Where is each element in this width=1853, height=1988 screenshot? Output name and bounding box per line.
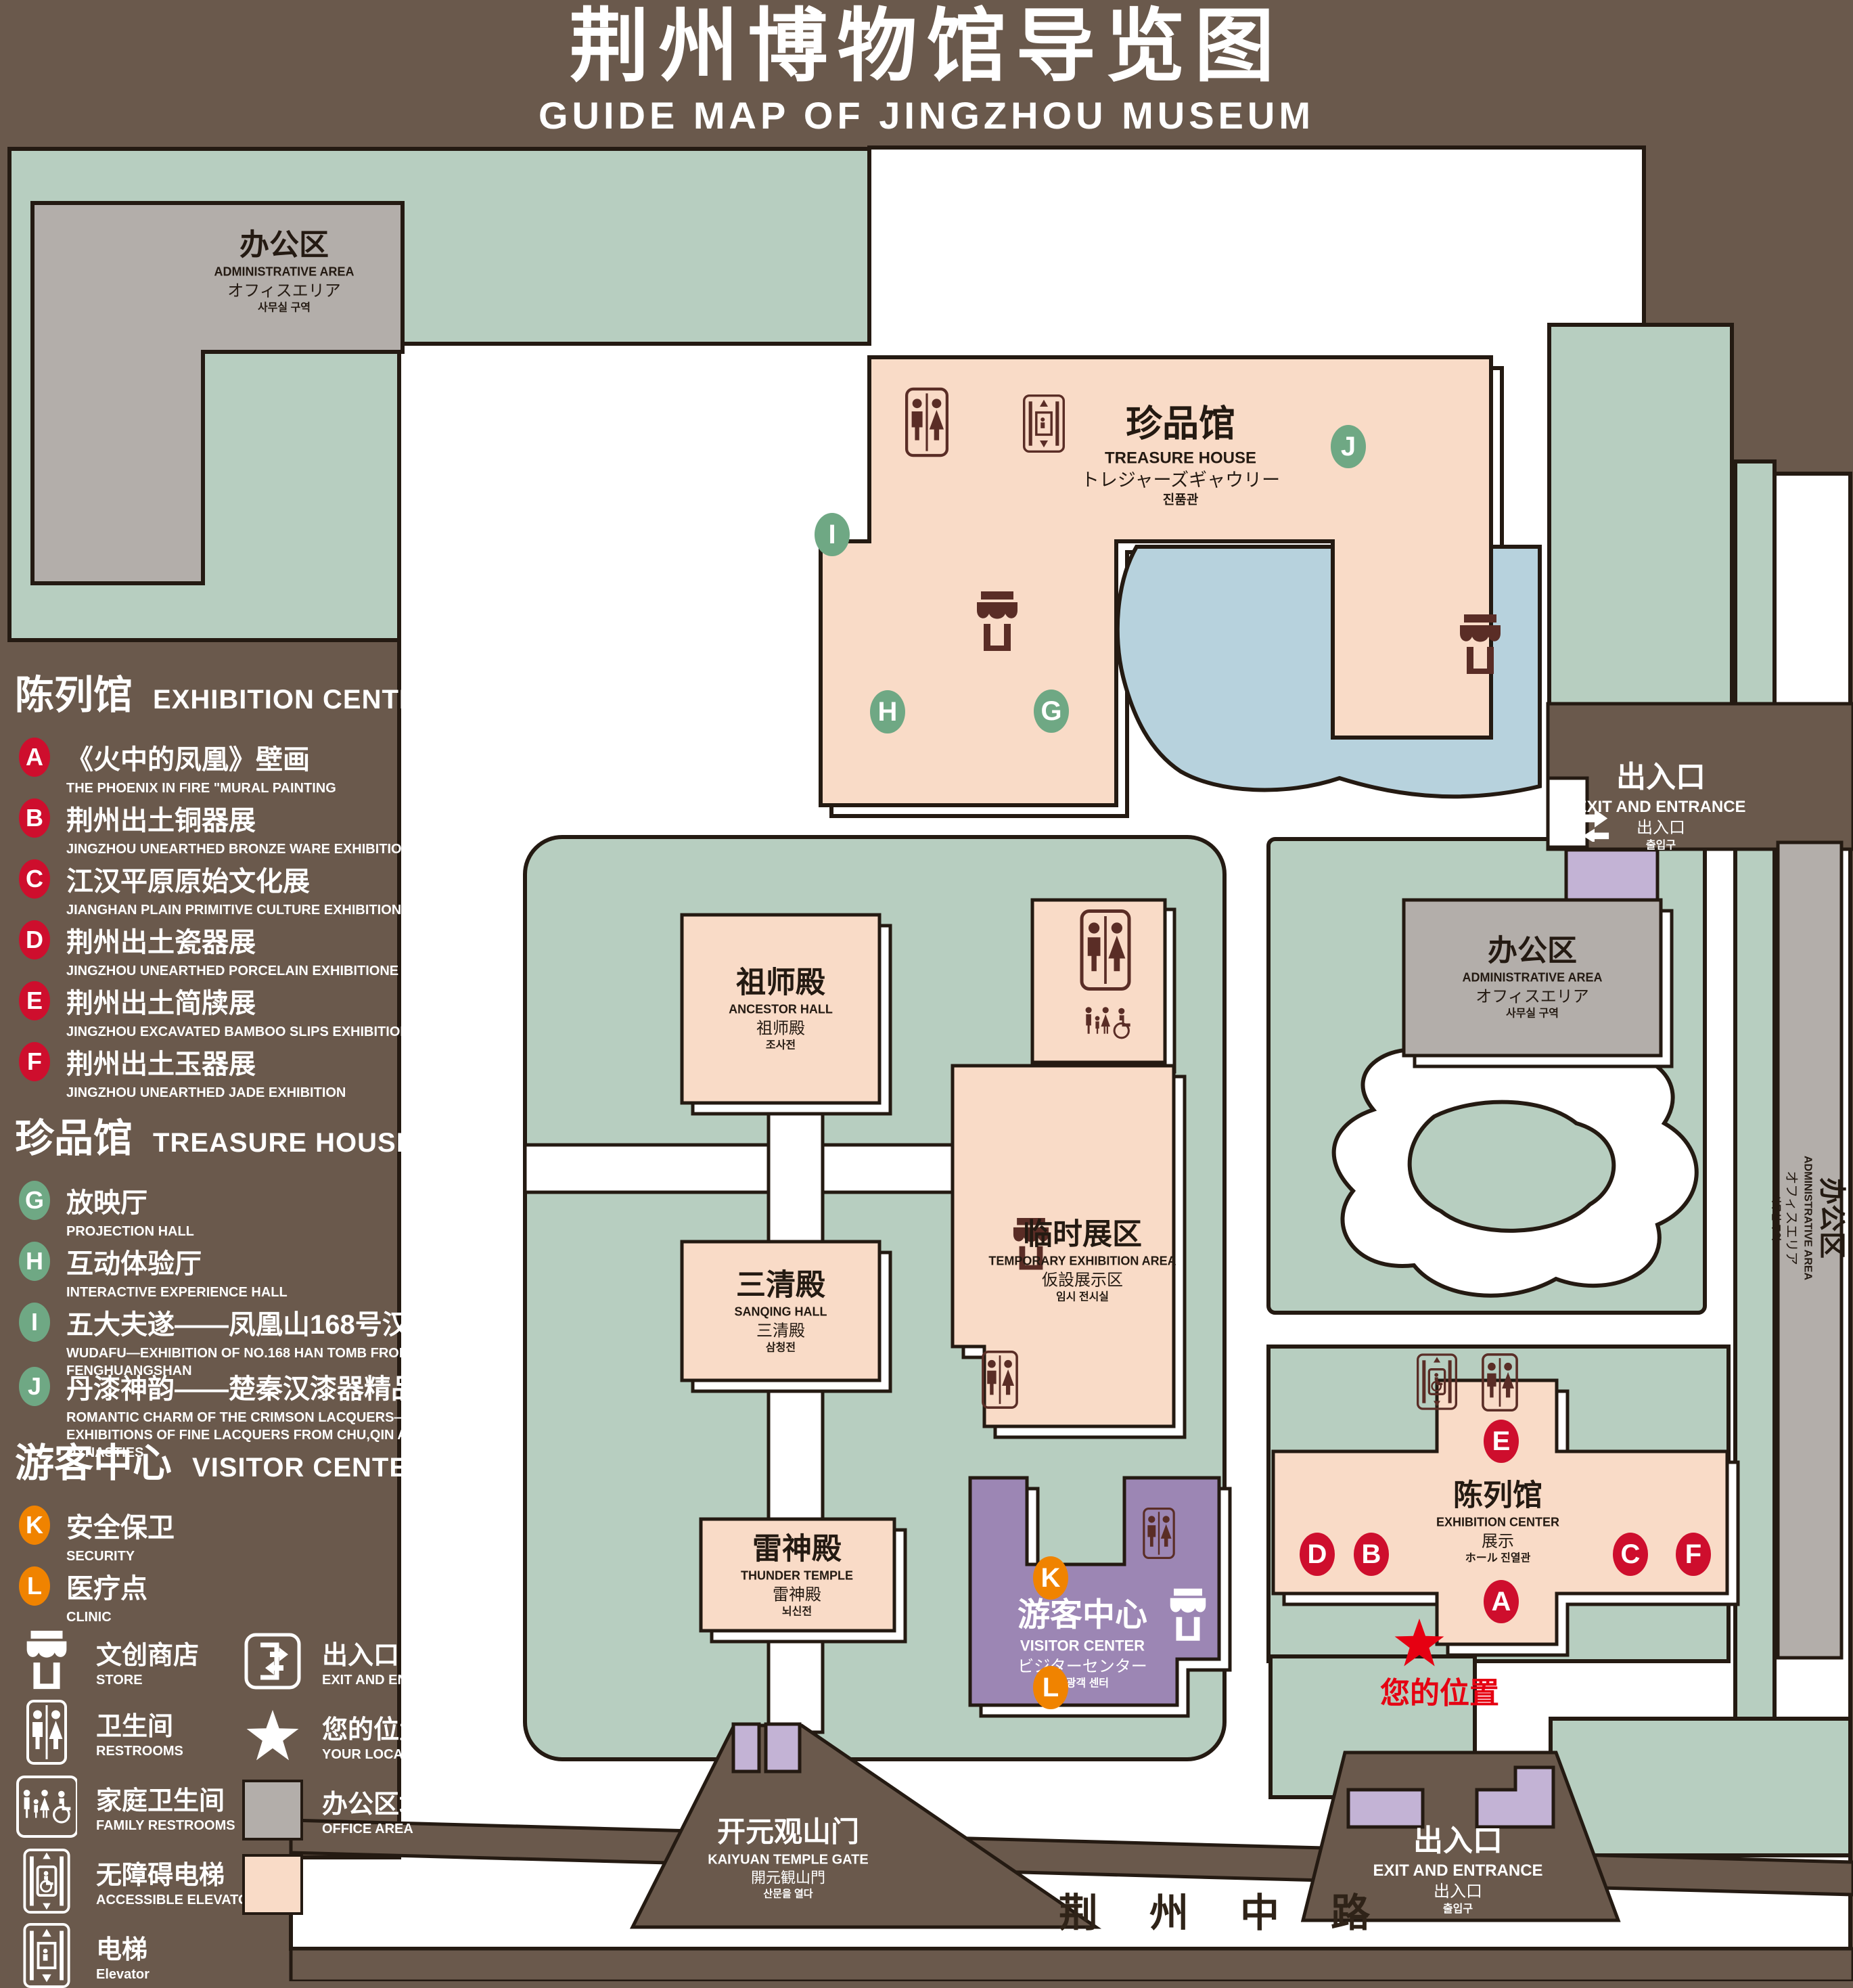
marker-e-badge: E bbox=[19, 981, 50, 1020]
floor-tag: 2F bbox=[465, 982, 499, 1016]
map-marker-l: L bbox=[1033, 1666, 1068, 1709]
map-marker-f: F bbox=[1676, 1533, 1711, 1576]
gate-building-northeast bbox=[1566, 850, 1657, 904]
map-marker-a: A bbox=[1484, 1580, 1519, 1623]
label-kaiyuan-gate: 开元观山门 KAIYUAN TEMPLE GATE 開元観山門 산문을 열다 bbox=[708, 1814, 868, 1901]
marker-b-badge: B bbox=[19, 798, 50, 838]
label-sanqing-hall: 三清殿 SANQING HALL 三清殿 삼청전 bbox=[735, 1266, 827, 1356]
path-horizontal bbox=[525, 1145, 953, 1192]
legend-item-e: E 荆州出土简牍展 JINGZHOU EXCAVATED BAMBOO SLIP… bbox=[12, 981, 518, 1041]
guide-map-page: { "title": {"zh": "荆州博物馆导览图", "en": "GUI… bbox=[0, 0, 1853, 1981]
floor-tag: 1F bbox=[465, 1568, 499, 1602]
legend-item-g: G 放映厅 PROJECTION HALL 1F bbox=[12, 1181, 518, 1240]
restrooms-block bbox=[1032, 900, 1165, 1062]
label-temporary-exhibition: 临时展区 TEMPORARY EXHIBITION AREA 仮設展示区 임시 … bbox=[988, 1215, 1176, 1305]
exit-icon bbox=[242, 1631, 303, 1692]
legend-symbol-store: 文创商店 STORE bbox=[16, 1631, 199, 1692]
marker-k-badge: K bbox=[19, 1506, 50, 1545]
label-exit-south: 出入口 EXIT AND ENTRANCE 出入口 출입구 bbox=[1373, 1822, 1542, 1916]
marker-f-badge: F bbox=[19, 1042, 50, 1081]
display-area-swatch bbox=[242, 1854, 303, 1915]
your-location-label: 您的位置 bbox=[1380, 1669, 1499, 1712]
floor-tag: 1F bbox=[465, 800, 499, 834]
legend-section-treasure-house: 珍品馆 TREASURE HOUSE bbox=[15, 1106, 415, 1163]
legend-section-exhibition-center: 陈列馆 EXHIBITION CENTER bbox=[15, 663, 438, 720]
marker-h-badge: H bbox=[19, 1242, 50, 1281]
map-marker-c: C bbox=[1613, 1533, 1648, 1576]
floor-tag: 1F bbox=[465, 1182, 499, 1216]
map-marker-i: I bbox=[815, 513, 850, 556]
map-marker-j: J bbox=[1331, 425, 1366, 468]
marker-a-badge: A bbox=[19, 738, 50, 777]
kaiyuan-gate-pillar-right bbox=[766, 1724, 800, 1771]
map-marker-b: B bbox=[1354, 1533, 1389, 1576]
floor-tag: 1F bbox=[465, 861, 499, 895]
store-icon bbox=[16, 1631, 77, 1692]
restroom-icon bbox=[16, 1702, 77, 1763]
label-exit-northeast: 出入口 EXIT AND ENTRANCE 出入口 출입구 bbox=[1576, 758, 1745, 853]
marker-c-badge: C bbox=[19, 859, 50, 899]
label-exhibition-center: 陈列馆 EXHIBITION CENTER 展示 ホール 진열관 bbox=[1436, 1476, 1559, 1566]
floor-tag: 2F bbox=[465, 1304, 499, 1338]
legend-symbol-exit: 出入口 EXIT AND ENTRANCE bbox=[242, 1631, 463, 1692]
label-admin-east: 办公区 ADMINISTRATIVE AREA オフィスエリア 사무실 구역 bbox=[1463, 932, 1603, 1022]
legend-symbol-display-area: 展示区域 DISPLAY AREA bbox=[242, 1854, 425, 1915]
marker-j-badge: J bbox=[19, 1367, 50, 1406]
legend-item-c: C 江汉平原原始文化展 JIANGHAN PLAIN PRIMITIVE CUL… bbox=[12, 859, 518, 919]
marker-l-badge: L bbox=[19, 1566, 50, 1606]
green-area-east-strip bbox=[1735, 461, 1775, 1719]
legend-symbol-accessible-elevator: 无障碍电梯 ACCESSIBLE ELEVATOR bbox=[16, 1851, 258, 1912]
marker-g-badge: G bbox=[19, 1181, 50, 1220]
floor-tag: 1-2F bbox=[438, 1368, 499, 1402]
floor-tag: 1F bbox=[465, 1507, 499, 1541]
legend-item-a: A 《火中的凤凰》壁画 THE PHOENIX IN FIRE "MURAL P… bbox=[12, 738, 518, 797]
floor-tag: 1F bbox=[465, 1243, 499, 1277]
legend-item-h: H 互动体验厅 INTERACTIVE EXPERIENCE HALL 1F bbox=[12, 1242, 518, 1301]
label-ancestor-hall: 祖师殿 ANCESTOR HALL 祖师殿 조사전 bbox=[729, 964, 833, 1054]
elevator-icon bbox=[1024, 396, 1064, 452]
your-location-star-icon bbox=[242, 1705, 303, 1766]
legend-item-l: L 医疗点 CLINIC 1F bbox=[12, 1566, 518, 1626]
legend-section-visitor-center: 游客中心 VISITOR CENTER bbox=[15, 1431, 428, 1488]
map-marker-e: E bbox=[1484, 1420, 1519, 1463]
green-area-south-2 bbox=[1551, 1719, 1850, 1855]
marker-d-badge: D bbox=[19, 920, 50, 959]
floor-tag: 1F bbox=[465, 739, 499, 773]
legend-item-b: B 荆州出土铜器展 JINGZHOU UNEARTHED BRONZE WARE… bbox=[12, 798, 518, 858]
map-marker-k: K bbox=[1033, 1556, 1068, 1600]
office-area-swatch bbox=[242, 1780, 303, 1840]
legend-symbol-your-location: 您的位置 YOUR LOCATION bbox=[242, 1705, 434, 1766]
map-marker-d: D bbox=[1300, 1533, 1335, 1576]
legend-item-k: K 安全保卫 SECURITY 1F bbox=[12, 1506, 518, 1565]
green-area-northeast-strip bbox=[1549, 325, 1732, 707]
legend-item-f: F 荆州出土玉器展 JINGZHOU UNEARTHED JADE EXHIBI… bbox=[12, 1042, 518, 1102]
road-label: 荆 州 中 路 bbox=[1059, 1881, 1390, 1938]
map-marker-g: G bbox=[1034, 690, 1069, 733]
floor-tag: 2F bbox=[465, 922, 499, 955]
legend-symbol-restrooms: 卫生间 RESTROOMS bbox=[16, 1702, 183, 1763]
floor-tag: 2F bbox=[465, 1043, 499, 1077]
legend-symbol-family-restrooms: 家庭卫生间 FAMILY RESTROOMS bbox=[16, 1776, 235, 1837]
map-marker-h: H bbox=[870, 690, 905, 733]
accessible-elevator-icon bbox=[16, 1851, 77, 1912]
marker-i-badge: I bbox=[19, 1303, 50, 1342]
kaiyuan-gate-pillar-left bbox=[733, 1724, 759, 1771]
label-admin-northwest: 办公区 ADMINISTRATIVE AREA オフィスエリア 사무실 구역 bbox=[214, 226, 354, 316]
label-treasure-house: 珍品馆 TREASURE HOUSE トレジャーズギャウリー 진품관 bbox=[1081, 400, 1280, 509]
legend-symbol-office-area: 办公区域 OFFICE AREA bbox=[242, 1780, 425, 1840]
legend-item-d: D 荆州出土瓷器展 JINGZHOU UNEARTHED PORCELAIN E… bbox=[12, 920, 518, 980]
legend: 陈列馆 EXHIBITION CENTER A 《火中的凤凰》壁画 THE PH… bbox=[12, 663, 526, 1962]
legend-symbol-elevator: 电梯 Elevator bbox=[16, 1925, 150, 1986]
family-restroom-icon bbox=[16, 1776, 77, 1837]
elevator-icon bbox=[16, 1925, 77, 1986]
label-admin-east-strip: 办公区 ADMINISTRATIVE AREA オフィスエリア 사무실 구역 bbox=[1770, 1156, 1850, 1280]
label-thunder-temple: 雷神殿 THUNDER TEMPLE 雷神殿 뇌신전 bbox=[741, 1530, 853, 1620]
